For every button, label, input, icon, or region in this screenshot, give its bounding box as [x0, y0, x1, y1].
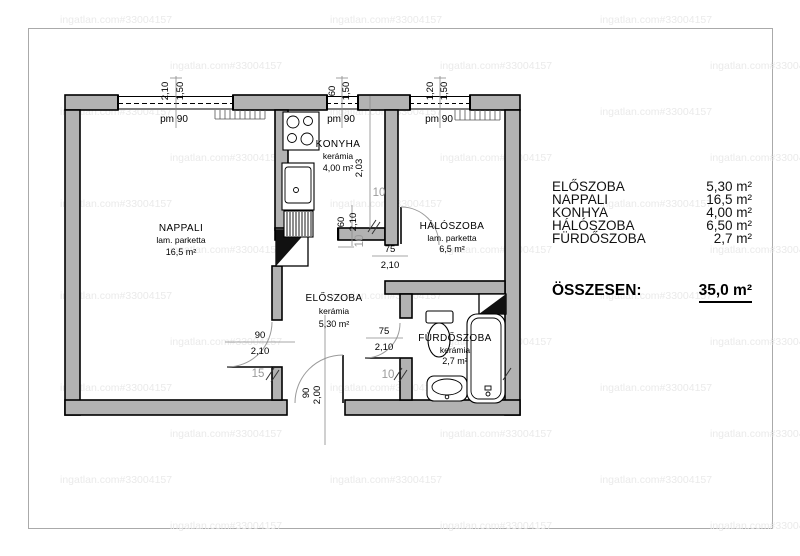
- haloszoba-name: HÁLÓSZOBA: [420, 219, 485, 232]
- shaft-bathroom-corner: [479, 294, 506, 314]
- legend-total-row: ÖSSZESEN: 35,0 m²: [552, 282, 752, 303]
- dim-konyha-door-h: 2,10: [348, 213, 359, 232]
- label-nappali: NAPPALI lam. parketta 16,5 m²: [156, 223, 205, 257]
- bathroom-sink: [427, 376, 467, 401]
- dim-w3-parapet: pm 90: [425, 114, 453, 125]
- dim-furdo-door-w: 75: [379, 326, 390, 337]
- area-legend: ELŐSZOBA 5,30 m² NAPPALI 16,5 m² KONHYA …: [552, 180, 752, 303]
- dim-w2-width: 60: [327, 86, 338, 97]
- dim-bejarat-w: 90: [301, 388, 312, 399]
- dim-nappali-door-h: 2,10: [251, 346, 270, 357]
- konyha-area: 4,00 m²: [323, 163, 354, 173]
- legend-value: 2,7 m²: [714, 232, 752, 245]
- dim-nappali-door-w: 90: [255, 330, 266, 341]
- furdoszoba-name: FÜRDŐSZOBA: [418, 330, 491, 344]
- konyha-name: KONYHA: [316, 139, 361, 150]
- floorplan-page: ingatlan.com#33004157ingatlan.com#330041…: [0, 0, 800, 556]
- door-nappali: [227, 322, 272, 367]
- haloszoba-area: 6,5 m²: [439, 244, 465, 254]
- nappali-area: 16,5 m²: [166, 247, 197, 257]
- dim-wall10-c: 10: [382, 369, 395, 381]
- dim-w2-parapet: pm 90: [327, 114, 355, 125]
- dim-w1-height: 1,50: [175, 82, 186, 101]
- eloszoba-area: 5,30 m²: [319, 319, 350, 329]
- dim-w2-height: 1,50: [341, 82, 352, 101]
- eloszoba-name: ELŐSZOBA: [305, 290, 362, 304]
- dim-wall15: 15: [252, 368, 265, 380]
- dim-bejarat-h: 2,00: [312, 386, 323, 405]
- furdoszoba-area: 2,7 m²: [442, 356, 468, 366]
- dim-w1-parapet: pm 90: [160, 114, 188, 125]
- legend-row: FÜRDŐSZOBA 2,7 m²: [552, 232, 752, 245]
- stove: [283, 112, 319, 150]
- nappali-floor: lam. parketta: [156, 235, 205, 245]
- dim-furdo-door-h: 2,10: [375, 342, 394, 353]
- legend-total-label: ÖSSZESEN:: [552, 282, 642, 303]
- dim-halo-door-w: 75: [385, 244, 396, 255]
- dim-w1-width: 2,10: [160, 82, 171, 101]
- dish-drainer: [284, 211, 313, 237]
- konyha-floor: kerámia: [323, 151, 354, 161]
- dim-wall10-a: 10: [373, 187, 386, 199]
- dim-konyha-depth: 2,03: [354, 159, 365, 178]
- eloszoba-floor: kerámia: [319, 306, 350, 316]
- bathtub: [467, 314, 505, 403]
- legend-total-value: 35,0 m²: [699, 282, 752, 303]
- nappali-name: NAPPALI: [159, 223, 203, 234]
- furdoszoba-floor: kerámia: [440, 345, 471, 355]
- dim-halo-door-h: 2,10: [381, 260, 400, 271]
- dim-w3-height: 1,50: [439, 82, 450, 101]
- dim-w3-width: 1,20: [425, 82, 436, 101]
- dim-konyha-door-w: 60: [336, 217, 347, 228]
- kitchen-sink: [282, 163, 314, 210]
- legend-label: FÜRDŐSZOBA: [552, 232, 646, 245]
- sill-hatch: [215, 110, 500, 120]
- label-haloszoba: HÁLÓSZOBA lam. parketta 6,5 m²: [420, 219, 485, 254]
- label-eloszoba: ELŐSZOBA kerámia 5,30 m²: [305, 290, 362, 329]
- haloszoba-floor: lam. parketta: [427, 233, 476, 243]
- dim-wall10-b: 10: [354, 235, 366, 248]
